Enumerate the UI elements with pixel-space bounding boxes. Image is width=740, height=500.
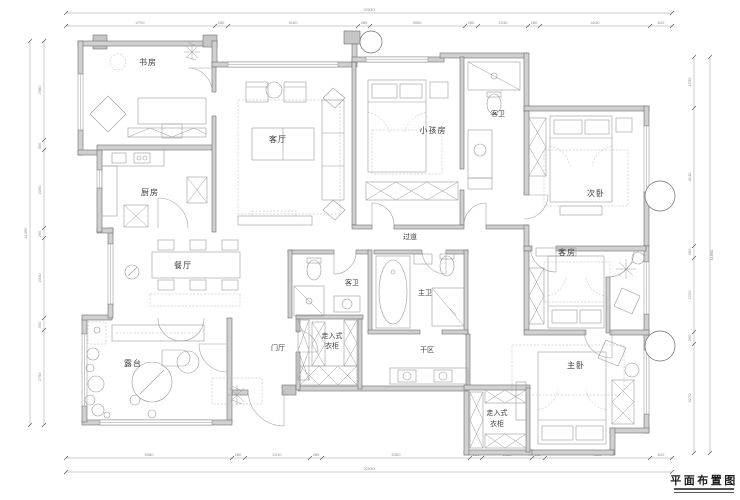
furniture-closet2: [470, 390, 526, 448]
window: [108, 244, 113, 304]
dim-left-seg: 350: [37, 321, 42, 328]
dim-right-seg: 360: [687, 334, 692, 341]
dim-bottom-seg: 620: [658, 452, 665, 457]
room-label-guest-room: 客房: [558, 247, 576, 257]
door-kitchen: [158, 198, 188, 228]
dim-left-seg: 2290: [37, 185, 42, 195]
dim-left-seg: 290: [37, 230, 42, 237]
door-master-bath: [422, 250, 446, 274]
window: [644, 126, 649, 192]
furniture-kids-room: [366, 80, 458, 200]
dim-bottom-total: 22030: [363, 466, 375, 471]
door-second-bedroom: [524, 195, 548, 219]
plan-title: 平面布置图: [670, 473, 738, 493]
dim-right-seg: 360: [687, 248, 692, 255]
bathtub-icon: [379, 260, 407, 324]
dim-right-seg: 3270: [687, 393, 692, 403]
room-label-guest-bath-top: 客卫: [491, 109, 505, 118]
dim-right-seg: 2220: [687, 290, 692, 300]
window: [644, 262, 649, 314]
door-kids-room: [372, 203, 394, 225]
dim-top-seg: 280: [361, 20, 368, 25]
furniture-second-bedroom: [529, 116, 632, 215]
dim-bottom-seg: 280: [313, 452, 320, 457]
room-label-kitchen: 厨房: [141, 187, 159, 197]
windows-layer: [78, 57, 649, 425]
furniture-dining: [125, 240, 240, 306]
dim-top-seg: 2240: [499, 20, 509, 25]
round-column: [360, 31, 382, 53]
door-guest-bath-mid: [334, 250, 356, 274]
window: [228, 62, 338, 67]
round-column: [645, 181, 675, 211]
room-labels: 书房 厨房 餐厅 客厅 小孩房 客卫 次卧 过道 客卫 主卫 客房 门厅 露台 …: [124, 57, 605, 428]
room-label-foyer: 门厅: [271, 343, 285, 352]
window: [366, 57, 428, 62]
dim-top-total: 22030: [363, 7, 375, 12]
round-column: [645, 331, 675, 361]
walls-layer: [78, 31, 649, 455]
room-label-closet2b: 衣柜: [490, 419, 504, 428]
window: [100, 420, 212, 425]
window: [644, 350, 649, 414]
room-label-guest-bath-mid: 客卫: [345, 278, 359, 287]
door-terrace-french: [158, 318, 204, 341]
dim-top-seg: 4700: [136, 20, 146, 25]
floorplan-drawing: 22030 4700 280 5160 280 3950 280 2240 28…: [0, 0, 740, 500]
room-label-master-bath: 主卫: [418, 288, 432, 297]
furniture-balcony: [614, 252, 644, 314]
room-label-corridor: 过道: [403, 232, 417, 241]
dim-right-seg: 4140: [687, 172, 692, 182]
dim-top-seg: 5160: [289, 20, 299, 25]
furniture-living: [238, 82, 345, 225]
furniture-guest-room: [529, 248, 610, 328]
window: [97, 170, 102, 188]
room-label-kids-room: 小孩房: [420, 125, 447, 135]
dim-bottom-seg: 5980: [145, 452, 155, 457]
dim-top-seg: 280: [468, 20, 475, 25]
dim-right-seg: 1530: [687, 77, 692, 87]
plant-icon: [227, 385, 247, 405]
dim-bottom-seg: 5300: [392, 452, 402, 457]
dim-right-total: 11880: [709, 249, 714, 261]
room-label-terrace: 露台: [124, 358, 142, 368]
dimension-chain-top: 22030 4700 280 5160 280 3950 280 2240 28…: [64, 7, 674, 28]
dim-left-seg: 2790: [37, 372, 42, 382]
dim-left-seg: 350: [37, 142, 42, 149]
room-label-dry-area: 干区: [420, 346, 434, 354]
floorplan-page: 22030 4700 280 5160 280 3950 280 2240 28…: [0, 0, 740, 500]
dim-left-seg: 2980: [37, 85, 42, 95]
dim-top-seg: 4240: [591, 20, 601, 25]
room-label-dining: 餐厅: [174, 261, 192, 270]
door-entry: [248, 390, 284, 426]
furniture-guest-bath-top: [468, 62, 520, 189]
dim-bottom-seg: 280: [235, 452, 242, 457]
plant-icon: [616, 259, 636, 279]
furniture-closet1: [300, 320, 357, 385]
door-terrace-side: [199, 344, 227, 372]
furniture-dry-area: [390, 368, 468, 384]
door-master-bedroom: [584, 330, 612, 358]
door-study: [188, 68, 212, 92]
room-label-study: 书房: [139, 57, 157, 67]
room-label-master-bedroom: 主卧: [567, 360, 585, 370]
dim-top-seg: 280: [218, 20, 225, 25]
plan-title-text: 平面布置图: [670, 473, 738, 487]
furniture-study: [90, 42, 206, 138]
room-label-closet2: 走入式: [487, 408, 508, 417]
room-label-closet1: 走入式: [322, 331, 343, 340]
dim-top-seg: 620: [658, 20, 665, 25]
furniture-terrace: [85, 322, 262, 418]
dimension-chain-left: 2980 350 2290 290 2340 350 2790 11390: [23, 39, 46, 427]
window: [78, 74, 83, 130]
room-label-living: 客厅: [269, 134, 287, 144]
dim-left-total: 11390: [23, 227, 28, 239]
room-label-second-bedroom: 次卧: [587, 188, 605, 198]
dim-top-seg: 3950: [413, 20, 423, 25]
door-guest-bath-top: [464, 203, 486, 225]
dim-top-seg: 280: [531, 20, 538, 25]
room-label-closet1b: 衣柜: [325, 341, 339, 350]
dim-bottom-seg: 2410: [273, 452, 283, 457]
dim-left-seg: 2340: [37, 273, 42, 283]
dimension-chain-right: 1530 4140 360 2220 360 3270 11880: [687, 55, 714, 455]
